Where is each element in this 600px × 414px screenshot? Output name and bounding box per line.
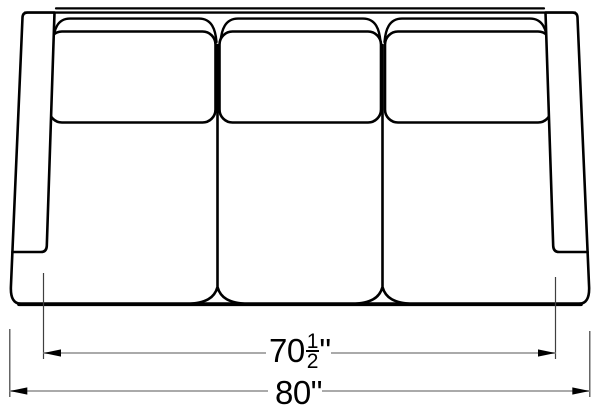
left-arm: [12, 13, 54, 252]
dimension-label-overall-width: 80 ": [275, 376, 322, 409]
arrow-outer-left: [10, 387, 28, 394]
arrow-outer-right: [572, 387, 590, 394]
right-arm-lower-edge: [579, 252, 589, 304]
sofa-back-rail: [25, 8, 575, 12]
inner-width-fraction: 1 2: [306, 334, 320, 371]
overall-width-unit-mark: ": [311, 376, 322, 409]
back-cushion-center: [220, 32, 382, 123]
right-arm: [546, 13, 588, 252]
overall-width-whole-number: 80: [275, 376, 311, 409]
back-cushion-left: [49, 32, 216, 123]
back-cushion-right: [385, 32, 551, 123]
arrow-inner-left: [44, 349, 62, 356]
sofa-dimension-diagram: 70 1 2 " 80 ": [0, 0, 600, 414]
left-arm-lower-edge: [11, 252, 21, 304]
inner-width-fraction-denominator: 2: [307, 352, 319, 371]
inner-width-whole-number: 70: [269, 334, 305, 367]
arrow-inner-right: [538, 349, 556, 356]
back-cushions: [49, 32, 551, 123]
inner-width-unit-mark: ": [319, 334, 330, 367]
dimension-label-inner-width: 70 1 2 ": [269, 334, 331, 371]
